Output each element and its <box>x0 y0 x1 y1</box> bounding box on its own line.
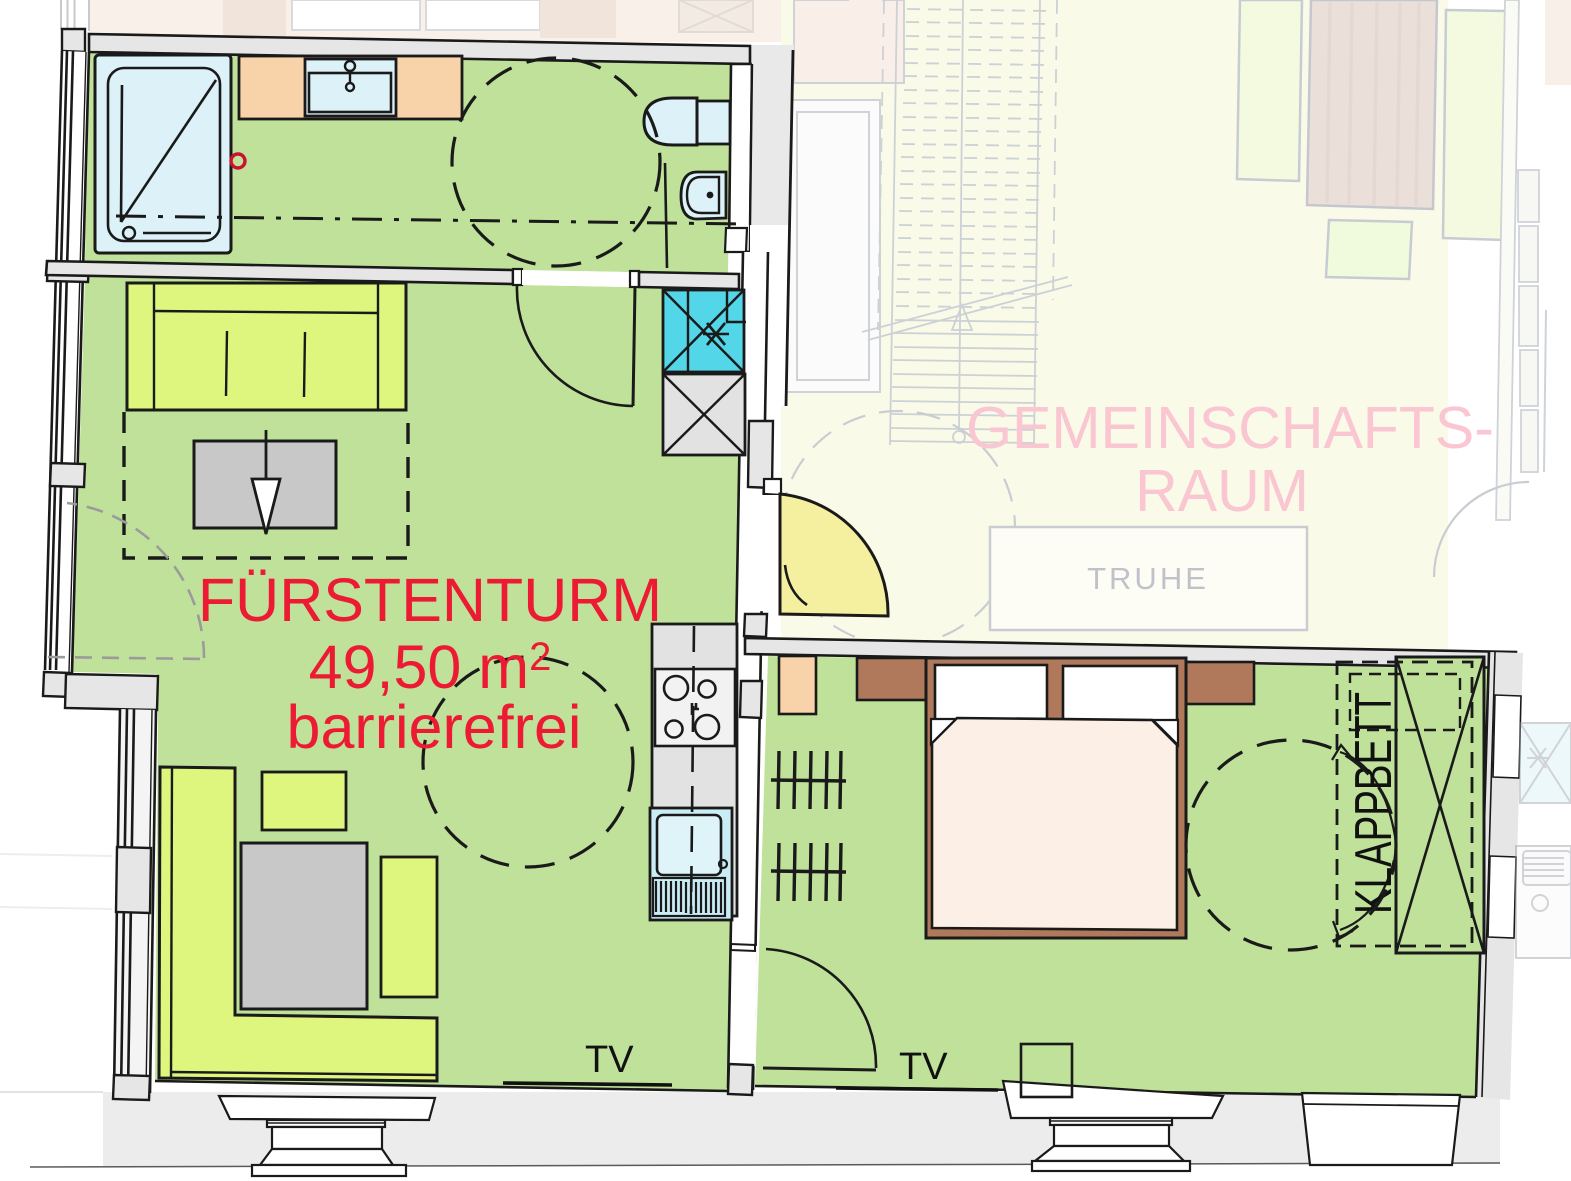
svg-text:GEMEINSCHAFTS-: GEMEINSCHAFTS- <box>966 395 1494 461</box>
svg-text:TV: TV <box>899 1046 948 1088</box>
svg-text:FÜRSTENTURM: FÜRSTENTURM <box>198 566 662 634</box>
svg-text:49,50 m2: 49,50 m2 <box>309 633 552 701</box>
svg-text:TV: TV <box>585 1039 634 1081</box>
svg-text:barrierefrei: barrierefrei <box>287 693 582 761</box>
svg-text:KLAPPBETT: KLAPPBETT <box>1345 692 1403 914</box>
svg-text:RAUM: RAUM <box>1135 458 1309 524</box>
svg-text:TRUHE: TRUHE <box>1087 561 1209 596</box>
